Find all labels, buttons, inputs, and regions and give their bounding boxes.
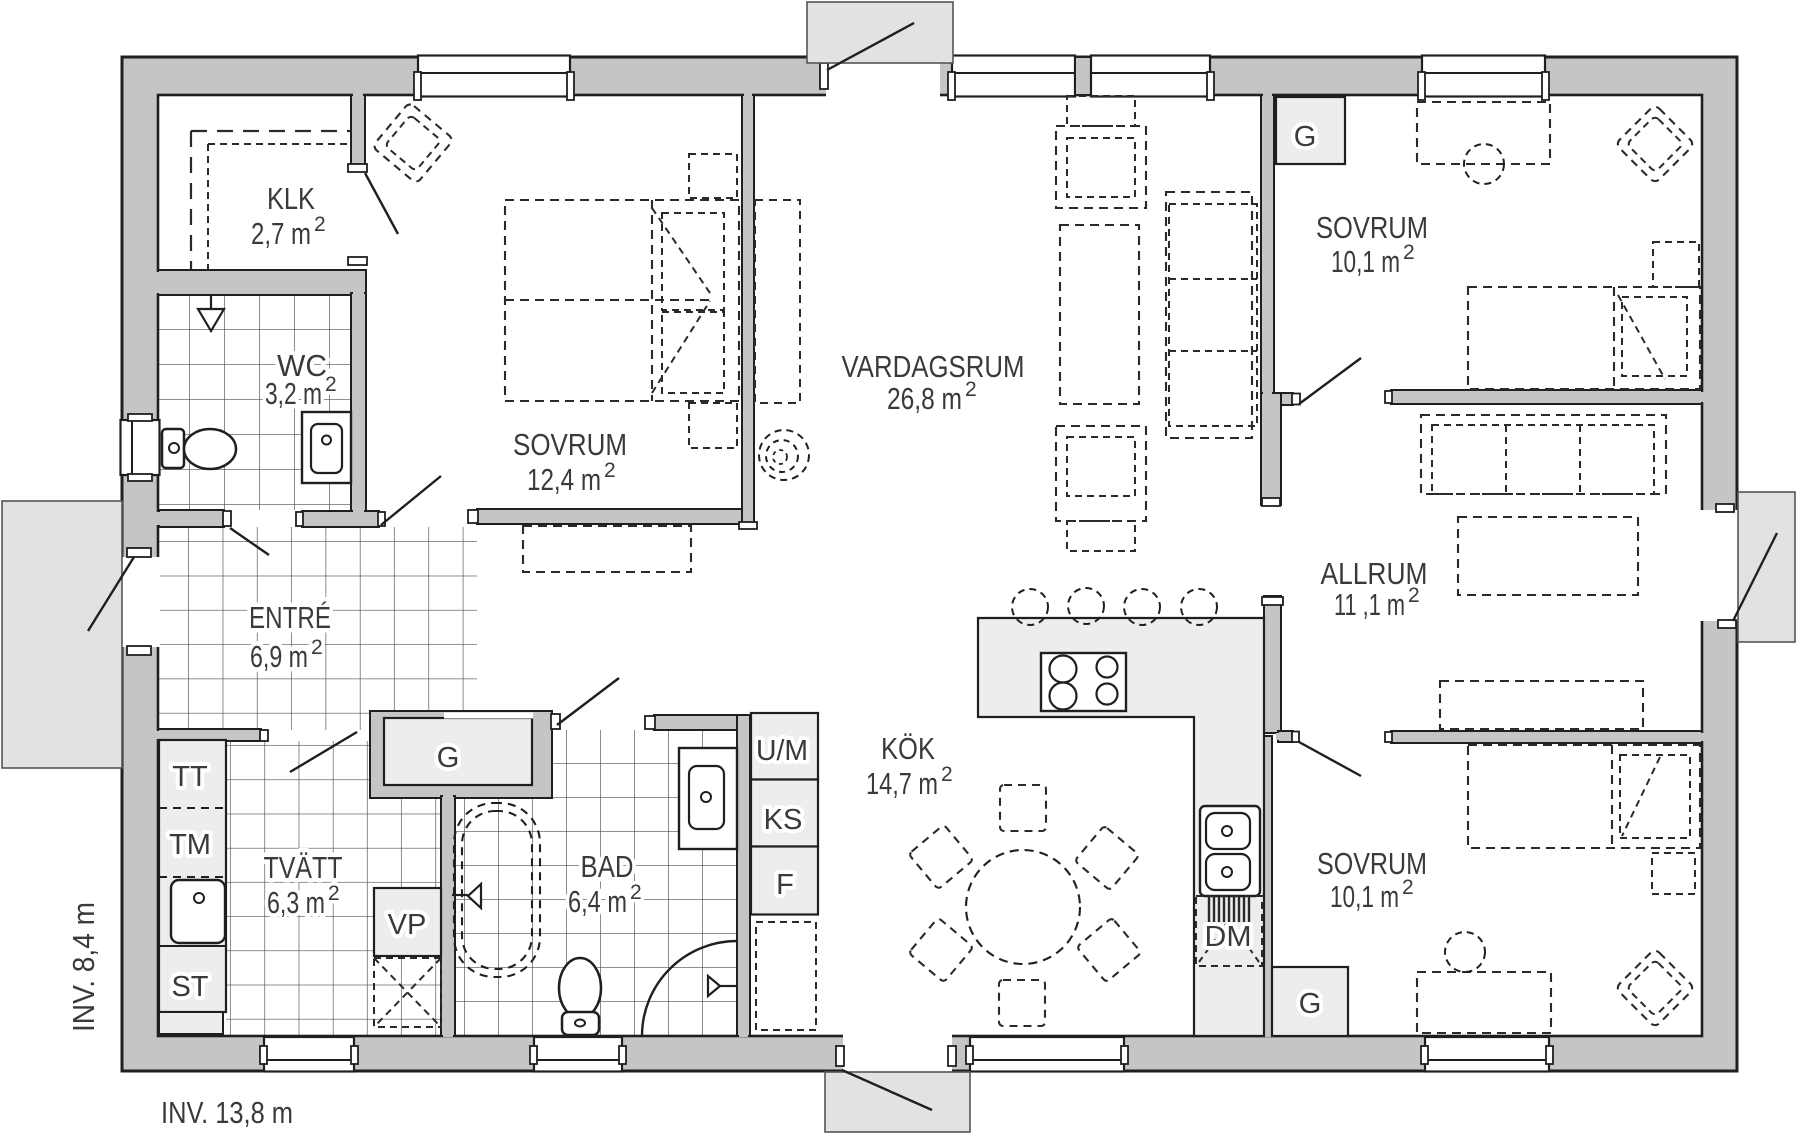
svg-text:INV. 8,4 m: INV. 8,4 m — [66, 902, 101, 1032]
svg-text:3,2 m: 3,2 m — [265, 376, 322, 411]
svg-text:G: G — [1294, 121, 1317, 153]
svg-text:6,9 m: 6,9 m — [250, 639, 308, 674]
svg-text:U/M: U/M — [756, 735, 808, 767]
svg-text:10,1 m: 10,1 m — [1330, 879, 1399, 914]
svg-text:6,3 m: 6,3 m — [267, 885, 325, 920]
svg-text:SOVRUM: SOVRUM — [513, 427, 627, 462]
svg-text:KLK: KLK — [267, 181, 315, 216]
svg-text:2: 2 — [965, 378, 977, 401]
svg-text:2: 2 — [604, 459, 616, 482]
svg-text:2,7 m: 2,7 m — [251, 216, 311, 251]
svg-text:TT: TT — [172, 761, 208, 793]
svg-text:12,4 m: 12,4 m — [527, 462, 601, 497]
svg-text:2: 2 — [941, 763, 953, 786]
svg-text:2: 2 — [1402, 876, 1414, 899]
svg-text:26,8 m: 26,8 m — [887, 381, 962, 416]
svg-text:2: 2 — [1408, 584, 1420, 607]
svg-text:F: F — [776, 869, 794, 901]
svg-text:TVÄTT: TVÄTT — [264, 850, 343, 885]
svg-text:DM: DM — [1205, 921, 1252, 953]
svg-text:VP: VP — [388, 909, 427, 941]
svg-text:2: 2 — [314, 213, 326, 236]
svg-text:2: 2 — [1403, 241, 1415, 264]
svg-text:KS: KS — [764, 804, 803, 836]
svg-text:SOVRUM: SOVRUM — [1316, 210, 1428, 245]
svg-text:G: G — [437, 742, 460, 774]
svg-text:2: 2 — [630, 881, 642, 904]
svg-text:BAD: BAD — [581, 849, 634, 884]
svg-text:2: 2 — [311, 636, 323, 659]
svg-text:ST: ST — [171, 971, 208, 1003]
svg-text:TM: TM — [169, 829, 211, 861]
svg-text:G: G — [1299, 988, 1322, 1020]
svg-text:VARDAGSRUM: VARDAGSRUM — [842, 349, 1025, 384]
svg-text:11 ,1 m: 11 ,1 m — [1334, 587, 1405, 622]
svg-text:KÖK: KÖK — [881, 731, 935, 766]
svg-text:2: 2 — [328, 882, 340, 905]
svg-text:6,4 m: 6,4 m — [568, 884, 627, 919]
svg-text:14,7 m: 14,7 m — [866, 766, 938, 801]
svg-text:10,1 m: 10,1 m — [1331, 244, 1400, 279]
svg-text:2: 2 — [325, 373, 337, 396]
svg-text:INV. 13,8 m: INV. 13,8 m — [161, 1095, 293, 1130]
svg-text:ENTRÉ: ENTRÉ — [249, 600, 331, 635]
